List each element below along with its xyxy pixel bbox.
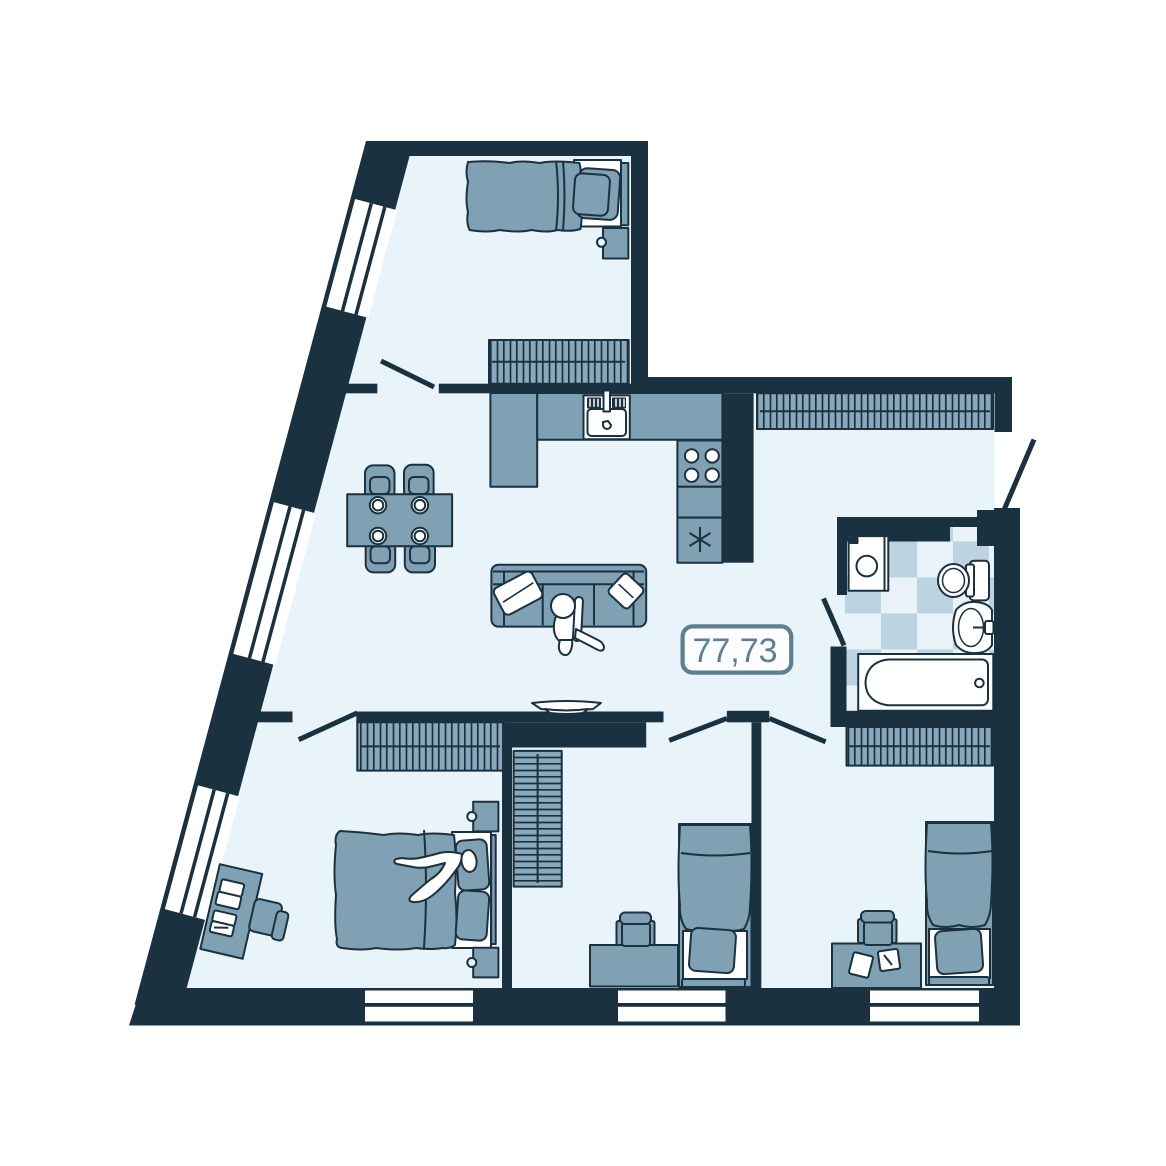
svg-text:77,73: 77,73 — [692, 632, 777, 670]
